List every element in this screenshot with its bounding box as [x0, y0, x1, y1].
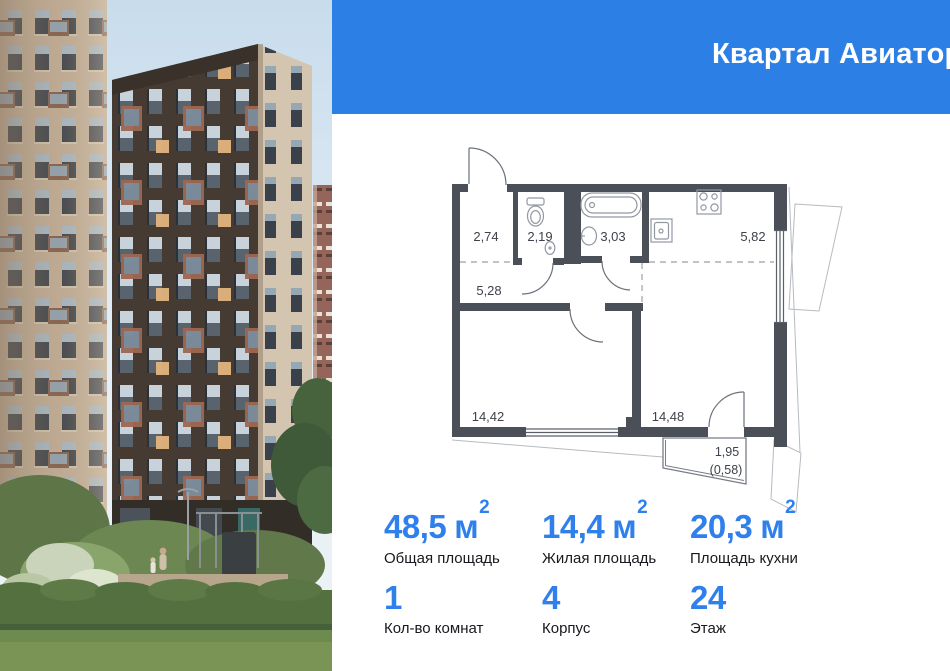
stat-kitchen-area: 20,3м2 Площадь кухни: [690, 504, 798, 567]
header-bar: Квартал Авиаторов самолет: [332, 0, 950, 114]
listing-card: Квартал Авиаторов самолет: [0, 0, 950, 671]
living-room-window: [526, 429, 618, 436]
zone-dashes: [460, 262, 774, 303]
room-label-entry: 2,74: [473, 229, 498, 244]
stat-value: 48,5м2: [384, 504, 500, 544]
balcony-area-label: 1,95: [715, 445, 739, 459]
building-photo: [0, 0, 332, 671]
stat-floor: 24 Этаж: [690, 581, 726, 637]
fixtures: [527, 190, 721, 254]
stat-value: 4: [542, 581, 590, 615]
room-label-hallway: 5,28: [476, 283, 501, 298]
stat-label: Кол-во комнат: [384, 620, 483, 637]
bathtub-icon: [581, 193, 641, 217]
wc-door-arc: [522, 263, 553, 294]
entry-door-arc: [469, 148, 506, 185]
floor-plan: 2,74 2,19 3,03 5,82 5,28 14,42 14,48 1,9…: [440, 136, 850, 520]
stat-building: 4 Корпус: [542, 581, 590, 637]
room-label-wc: 2,19: [527, 229, 552, 244]
stat-value: 20,3м2: [690, 504, 798, 544]
kitchen-sink-icon: [651, 219, 672, 242]
stove-icon: [697, 190, 721, 214]
stat-value: 1: [384, 581, 483, 615]
stat-label: Общая площадь: [384, 550, 500, 567]
stat-living-area: 14,4м2 Жилая площадь: [542, 504, 656, 567]
stat-rooms-count: 1 Кол-во комнат: [384, 581, 483, 637]
stat-total-area: 48,5м2 Общая площадь: [384, 504, 500, 567]
bathroom-door-arc: [602, 261, 630, 290]
stat-label: Этаж: [690, 620, 726, 637]
room-label-kitchen-living: 14,48: [652, 409, 685, 424]
balcony-reduced-area-label: (0,58): [710, 463, 743, 477]
room-label-kitchen: 5,82: [740, 229, 765, 244]
balcony-door-arc: [709, 392, 744, 427]
room-label-living-room: 14,42: [472, 409, 505, 424]
kitchen-window: [774, 230, 787, 323]
walls: [452, 184, 787, 447]
project-title: Квартал Авиаторов: [712, 38, 950, 71]
hedge: [0, 579, 332, 634]
stat-value: 24: [690, 581, 726, 615]
toilet-icon: [527, 198, 544, 226]
living-door-arc: [570, 309, 603, 342]
washbasin-icon: [581, 227, 597, 245]
stat-label: Жилая площадь: [542, 550, 656, 567]
stat-label: Площадь кухни: [690, 550, 798, 567]
stat-value: 14,4м2: [542, 504, 656, 544]
stat-label: Корпус: [542, 620, 590, 637]
room-label-bathroom: 3,03: [600, 229, 625, 244]
